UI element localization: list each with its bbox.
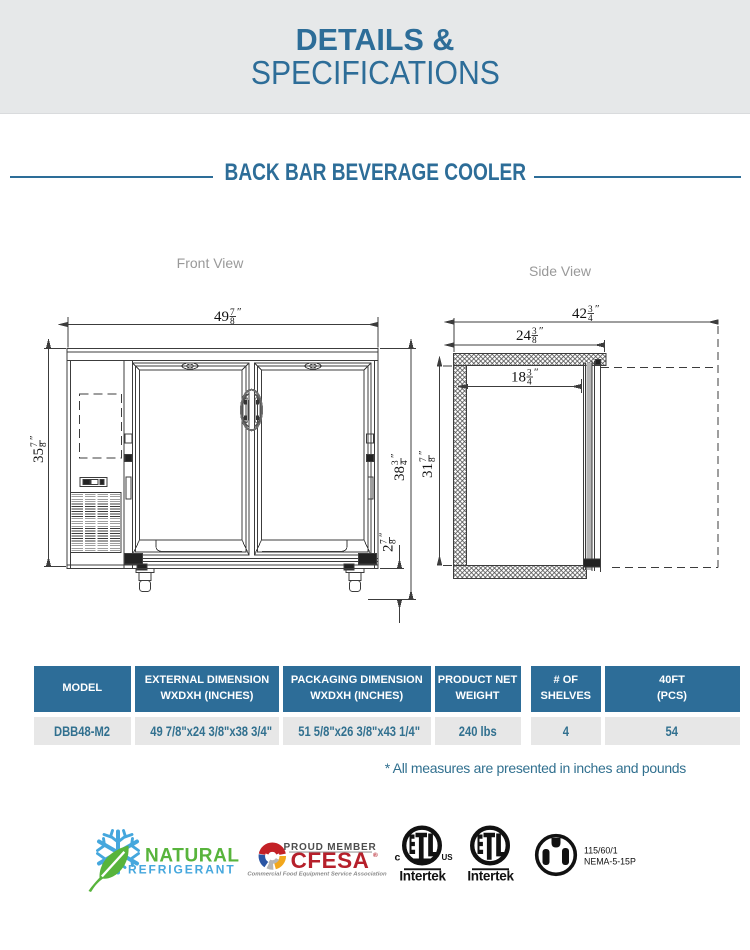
svg-text:8: 8 bbox=[389, 539, 399, 544]
svg-text:″: ″ bbox=[28, 435, 40, 440]
svg-text:c: c bbox=[395, 852, 401, 864]
svg-text:Front View: Front View bbox=[177, 255, 245, 271]
svg-text:Commercial Food Equipment Serv: Commercial Food Equipment Service Associ… bbox=[247, 871, 387, 877]
svg-text:18: 18 bbox=[511, 370, 526, 386]
svg-text:″: ″ bbox=[539, 325, 544, 337]
svg-text:24: 24 bbox=[516, 328, 532, 344]
svg-text:CFESA: CFESA bbox=[291, 848, 370, 873]
svg-text:8: 8 bbox=[39, 442, 49, 447]
svg-text:8: 8 bbox=[230, 317, 235, 327]
svg-text:49: 49 bbox=[214, 309, 229, 325]
svg-text:US: US bbox=[442, 853, 454, 862]
svg-text:″: ″ bbox=[595, 303, 600, 315]
svg-text:2: 2 bbox=[381, 545, 397, 553]
svg-text:4: 4 bbox=[588, 314, 593, 324]
svg-text:8: 8 bbox=[428, 457, 438, 462]
svg-text:″: ″ bbox=[534, 367, 539, 379]
svg-text:®: ® bbox=[373, 851, 378, 859]
svg-text:38: 38 bbox=[392, 466, 408, 481]
svg-text:″: ″ bbox=[389, 453, 401, 458]
svg-text:″: ″ bbox=[378, 532, 390, 537]
svg-text:Intertek: Intertek bbox=[467, 869, 514, 884]
svg-text:REFRIGERANT: REFRIGERANT bbox=[128, 863, 236, 877]
svg-text:4: 4 bbox=[400, 460, 410, 465]
svg-text:″: ″ bbox=[417, 450, 429, 455]
svg-text:4: 4 bbox=[527, 378, 532, 388]
svg-text:42: 42 bbox=[572, 306, 587, 322]
svg-text:Side View: Side View bbox=[529, 263, 592, 279]
svg-text:35: 35 bbox=[31, 448, 47, 463]
svg-text:115/60/1: 115/60/1 bbox=[584, 846, 618, 856]
svg-text:Intertek: Intertek bbox=[399, 869, 446, 884]
svg-text:″: ″ bbox=[237, 306, 242, 318]
svg-text:8: 8 bbox=[532, 336, 537, 346]
svg-text:NEMA-5-15P: NEMA-5-15P bbox=[584, 857, 636, 867]
svg-text:31: 31 bbox=[420, 463, 436, 478]
